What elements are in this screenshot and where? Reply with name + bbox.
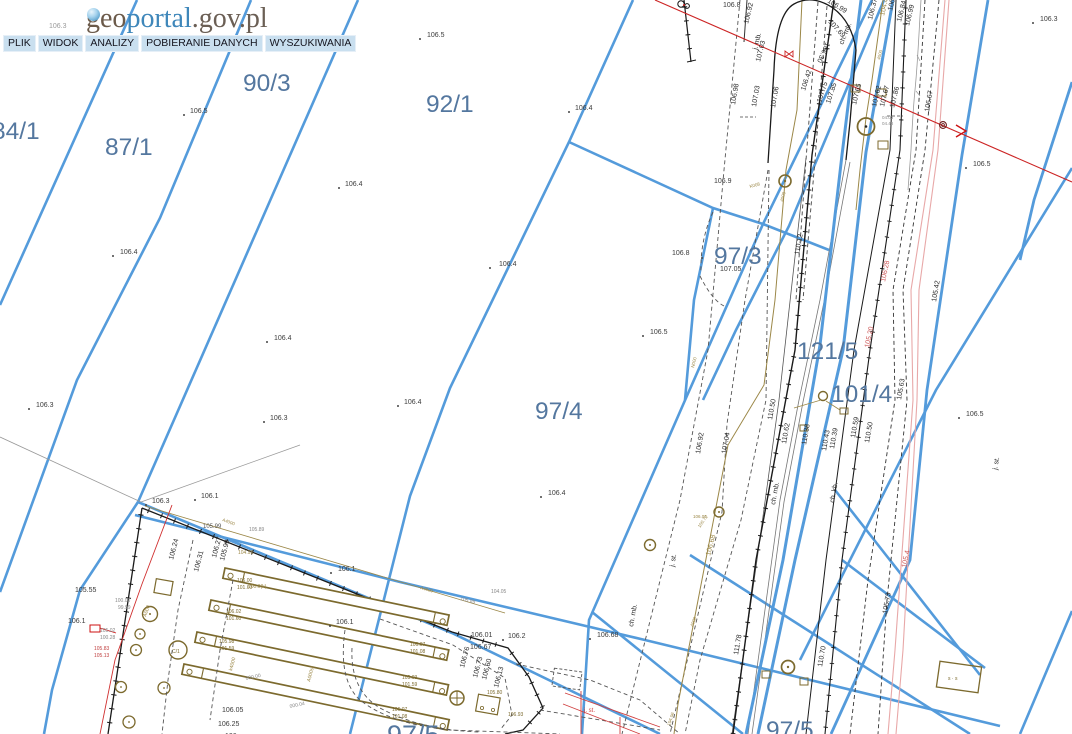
svg-text:105.83: 105.83 xyxy=(94,646,110,652)
svg-text:106.4: 106.4 xyxy=(120,249,138,256)
svg-text:90/3: 90/3 xyxy=(243,70,291,97)
svg-text:106.3: 106.3 xyxy=(270,415,288,422)
svg-text:106.4: 106.4 xyxy=(274,335,292,342)
svg-text:106.1: 106.1 xyxy=(338,566,356,573)
svg-text:105.02: 105.02 xyxy=(100,628,116,634)
svg-text:106.4: 106.4 xyxy=(345,181,363,188)
svg-text:106.25: 106.25 xyxy=(218,721,240,728)
svg-text:106.5: 106.5 xyxy=(650,329,668,336)
svg-text:105.99: 105.99 xyxy=(203,524,222,530)
svg-text:87/1: 87/1 xyxy=(105,134,153,161)
svg-text:97/5: 97/5 xyxy=(387,720,440,734)
svg-text:105.55: 105.55 xyxy=(75,587,97,594)
svg-text:106.3: 106.3 xyxy=(36,402,54,409)
svg-text:101.59: 101.59 xyxy=(219,646,235,652)
svg-text:106.3: 106.3 xyxy=(49,23,67,30)
svg-text:105.80: 105.80 xyxy=(487,690,503,696)
svg-text:106.3: 106.3 xyxy=(152,498,170,505)
svg-text:101.59: 101.59 xyxy=(402,682,418,688)
svg-text:106.2: 106.2 xyxy=(508,633,526,640)
svg-text:106.1: 106.1 xyxy=(336,619,354,626)
svg-text:107.05: 107.05 xyxy=(720,266,742,273)
svg-text:97/5: 97/5 xyxy=(766,717,814,734)
svg-text:106.07: 106.07 xyxy=(410,642,426,648)
svg-text:106.02: 106.02 xyxy=(226,609,242,615)
svg-text:106.1: 106.1 xyxy=(201,493,219,500)
svg-text:104.05: 104.05 xyxy=(491,589,507,595)
svg-text:100.00: 100.00 xyxy=(115,598,131,604)
svg-text:106.05: 106.05 xyxy=(222,707,244,714)
svg-text:106.5: 106.5 xyxy=(427,32,445,39)
svg-text:106.5: 106.5 xyxy=(966,411,984,418)
svg-text:106.68: 106.68 xyxy=(597,632,619,639)
svg-text:106.07: 106.07 xyxy=(392,707,408,713)
svg-text:104.95: 104.95 xyxy=(238,550,254,556)
svg-text:106.9: 106.9 xyxy=(714,178,732,185)
svg-text:84/1: 84/1 xyxy=(0,118,40,145)
svg-text:99.99: 99.99 xyxy=(118,605,131,611)
svg-text:106.01: 106.01 xyxy=(471,632,493,639)
svg-text:97/4: 97/4 xyxy=(535,398,583,425)
svg-text:100.0(k): 100.0(k) xyxy=(248,584,267,590)
svg-text:100.28: 100.28 xyxy=(100,635,116,641)
svg-text:106.93: 106.93 xyxy=(508,712,524,718)
svg-text:105.13: 105.13 xyxy=(94,653,110,659)
svg-text:106.4: 106.4 xyxy=(499,261,517,268)
svg-text:106.1: 106.1 xyxy=(68,618,86,625)
svg-text:101.60: 101.60 xyxy=(226,616,242,622)
svg-text:101/4: 101/4 xyxy=(831,381,892,408)
svg-text:106.5: 106.5 xyxy=(190,108,208,115)
svg-text:106.5: 106.5 xyxy=(973,161,991,168)
svg-text:106.3: 106.3 xyxy=(1040,16,1058,23)
svg-text:106.8: 106.8 xyxy=(723,2,741,9)
svg-text:106.4: 106.4 xyxy=(404,399,422,406)
svg-text:106.02: 106.02 xyxy=(693,514,707,519)
svg-text:106.4: 106.4 xyxy=(548,490,566,497)
svg-text:s · s: s · s xyxy=(948,676,958,682)
svg-text:121/5: 121/5 xyxy=(797,338,858,365)
svg-text:j. st.: j. st. xyxy=(583,708,595,714)
svg-text:105.98: 105.98 xyxy=(219,639,235,645)
svg-text:101.08: 101.08 xyxy=(392,714,408,720)
svg-text:105.89: 105.89 xyxy=(249,527,265,533)
svg-text:105.03: 105.03 xyxy=(402,675,418,681)
svg-text:04.03: 04.03 xyxy=(882,115,894,120)
svg-text:92/1: 92/1 xyxy=(426,91,474,118)
svg-text:106.8: 106.8 xyxy=(672,250,690,257)
svg-text:04.48: 04.48 xyxy=(882,121,894,126)
svg-text:106.67: 106.67 xyxy=(470,644,492,651)
svg-text:101.08: 101.08 xyxy=(410,649,426,655)
svg-text:C/1: C/1 xyxy=(172,649,180,655)
svg-text:106.4: 106.4 xyxy=(575,105,593,112)
